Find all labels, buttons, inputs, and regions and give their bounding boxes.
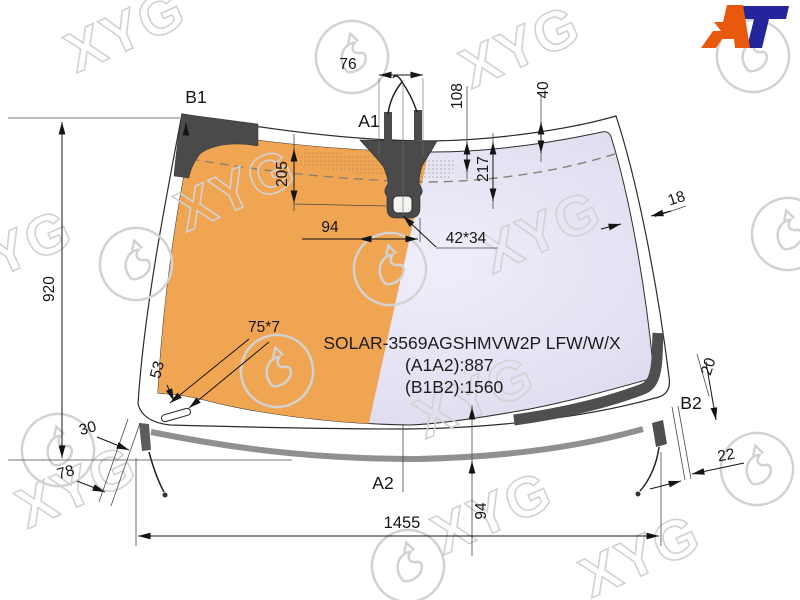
- dim-40: 40: [535, 81, 552, 99]
- anchor-label-a2: A2: [372, 473, 393, 493]
- dim-217: 217: [475, 156, 492, 182]
- left-wire-terminal: [163, 493, 168, 498]
- xyg-watermark-text: XYG: [450, 0, 589, 100]
- right-wire-terminal: [636, 492, 641, 497]
- windshield-glass: [120, 76, 669, 498]
- dim-75x7: 75*7: [248, 319, 280, 336]
- part-dim-a1a2: (A1A2):887: [405, 355, 494, 375]
- xyg-watermark-bird-icon: [740, 186, 800, 281]
- windshield-diagram-canvas: XYG XYG XYG XYG XYG XYG XYG XYG XYG: [0, 0, 800, 600]
- dim-20: 20: [698, 355, 720, 377]
- at-logo-a: [701, 5, 750, 48]
- right-connector-wire: [640, 447, 659, 491]
- at-logo: [701, 5, 789, 48]
- xyg-watermark-text: XYG: [55, 0, 194, 84]
- bracket-tab-left: [384, 112, 392, 141]
- xyg-watermark-text: XYG: [422, 458, 561, 566]
- dim-hole-42x34: 42*34: [446, 230, 487, 247]
- part-number: SOLAR-3569AGSHMVW2P LFW/W/X: [323, 333, 621, 353]
- left-connector-wire: [149, 452, 164, 492]
- dim-1455: 1455: [384, 514, 421, 532]
- right-connector-tab: [652, 420, 667, 447]
- dim-108: 108: [449, 83, 466, 109]
- xyg-watermark-bird-icon: [709, 421, 800, 516]
- dim-30: 30: [77, 418, 99, 439]
- molding-strip: [151, 429, 643, 459]
- bracket-antenna-wire: [388, 76, 417, 114]
- dim-22: 22: [716, 446, 736, 466]
- part-dim-b1b2: (B1B2):1560: [405, 377, 504, 397]
- anchor-label-b1: B1: [185, 87, 206, 107]
- xyg-watermark-text: XYG: [570, 501, 709, 600]
- bracket-tab-right: [414, 110, 422, 140]
- left-connector-tab: [139, 423, 151, 451]
- dim-205: 205: [274, 161, 291, 187]
- anchor-label-a1: A1: [358, 111, 379, 131]
- dim-76: 76: [339, 56, 356, 73]
- dim-94-top: 94: [321, 219, 339, 236]
- anchor-label-b2: B2: [680, 393, 701, 413]
- mirror-bracket-hole: [393, 196, 412, 213]
- dim-920: 920: [41, 276, 58, 302]
- windshield-drawing-page: XYG XYG XYG XYG XYG XYG XYG XYG XYG: [0, 0, 800, 600]
- dim-94-bottom: 94: [473, 502, 490, 520]
